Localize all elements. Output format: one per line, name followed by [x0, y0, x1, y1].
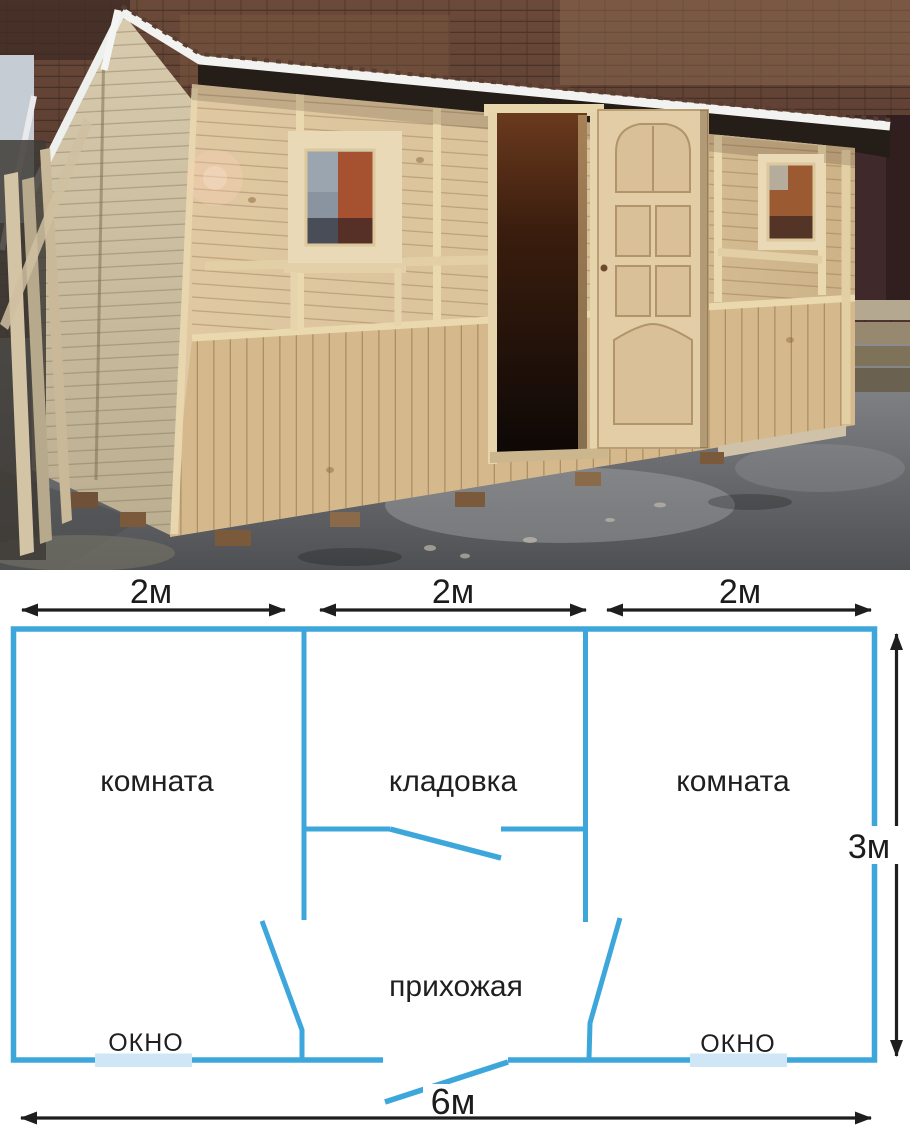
- lens-flare: [187, 150, 243, 206]
- room-label-hallway: прихожая: [389, 970, 523, 1003]
- right-window: [758, 154, 824, 250]
- dim-label-bottom: 6м: [431, 1081, 476, 1122]
- window-label-right: ОКНО: [700, 1030, 776, 1058]
- storage-door-leaf: [390, 829, 501, 858]
- entrance-opening: [383, 1054, 508, 1066]
- room-label-storage: кладовка: [389, 765, 518, 798]
- dim-label-right: 3м: [848, 828, 890, 866]
- floor-plan: 2м 2м 2м 3м 6м комната кладовка комната …: [0, 570, 910, 1138]
- window-label-left: ОКНО: [108, 1029, 184, 1057]
- door-leaf: [598, 110, 708, 448]
- page: 2м 2м 2м 3м 6м комната кладовка комната …: [0, 0, 910, 1138]
- lumber-pile: [850, 300, 910, 392]
- dim-label-top-2: 2м: [432, 573, 474, 611]
- room-label-right: комната: [676, 765, 790, 798]
- dim-label-top-3: 2м: [719, 573, 761, 611]
- right-room-door-leaf: [589, 918, 620, 1059]
- dim-label-top-1: 2м: [130, 573, 172, 611]
- door-jamb-left: [488, 112, 497, 464]
- room-labels: комната кладовка комната прихожая ОКНО О…: [100, 765, 790, 1058]
- cabin-photo-svg: [0, 0, 910, 570]
- doorway-opening: [497, 113, 587, 453]
- floor-plan-svg: 2м 2м 2м 3м 6м комната кладовка комната …: [0, 570, 910, 1138]
- room-label-left: комната: [100, 765, 214, 798]
- cabin-photo: [0, 0, 910, 570]
- dimension-labels: 2м 2м 2м 3м 6м: [130, 573, 899, 1122]
- left-room-door-leaf: [262, 921, 302, 1059]
- door-handle: [601, 265, 608, 272]
